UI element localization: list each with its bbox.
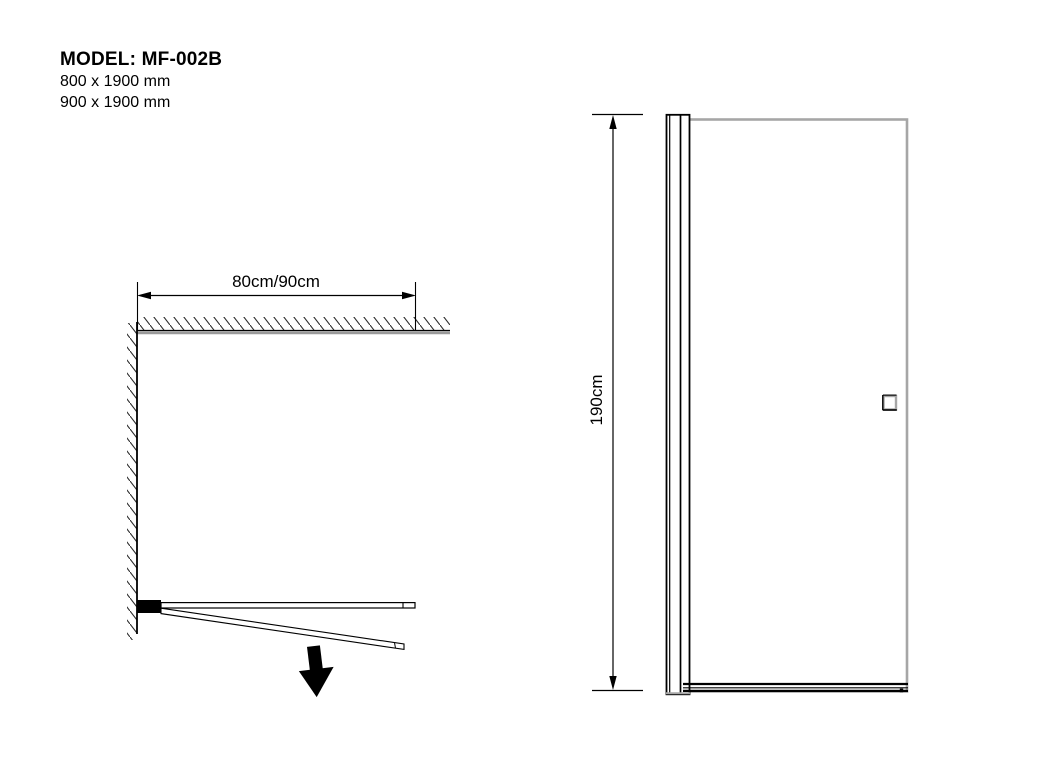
threshold-end-mark bbox=[900, 689, 903, 693]
handle-square-outer bbox=[884, 396, 897, 410]
left-wall-hatching bbox=[127, 323, 137, 640]
technical-drawing-canvas: MODEL: MF-002B 800 x 1900 mm 900 x 1900 … bbox=[0, 0, 1050, 784]
door-panel-open bbox=[161, 608, 404, 649]
door-open-position bbox=[161, 608, 404, 649]
plan-view: 80cm/90cm bbox=[127, 272, 450, 699]
width-dimension-label: 80cm/90cm bbox=[232, 272, 320, 291]
elevation-height-dimension: 190cm bbox=[587, 115, 643, 691]
wall-profile bbox=[667, 115, 690, 695]
arrowhead-up bbox=[609, 115, 616, 129]
door-panel-closed bbox=[161, 603, 415, 608]
glass-panel bbox=[682, 120, 907, 692]
elevation-view: 190cm bbox=[587, 115, 908, 695]
door-handle bbox=[883, 395, 897, 410]
top-wall-hatching bbox=[137, 317, 450, 330]
plan-left-wall bbox=[127, 322, 137, 640]
plan-top-wall bbox=[137, 317, 450, 333]
hinge-block bbox=[137, 600, 161, 613]
swing-direction-arrow bbox=[296, 644, 337, 699]
arrowhead-left bbox=[137, 292, 151, 299]
drawing-svg: 80cm/90cm bbox=[0, 0, 1050, 784]
door-closed-position bbox=[161, 603, 415, 608]
arrow-head bbox=[299, 667, 337, 699]
arrowhead-right bbox=[402, 292, 416, 299]
height-dimension-label: 190cm bbox=[587, 374, 606, 425]
arrowhead-down bbox=[609, 676, 616, 690]
